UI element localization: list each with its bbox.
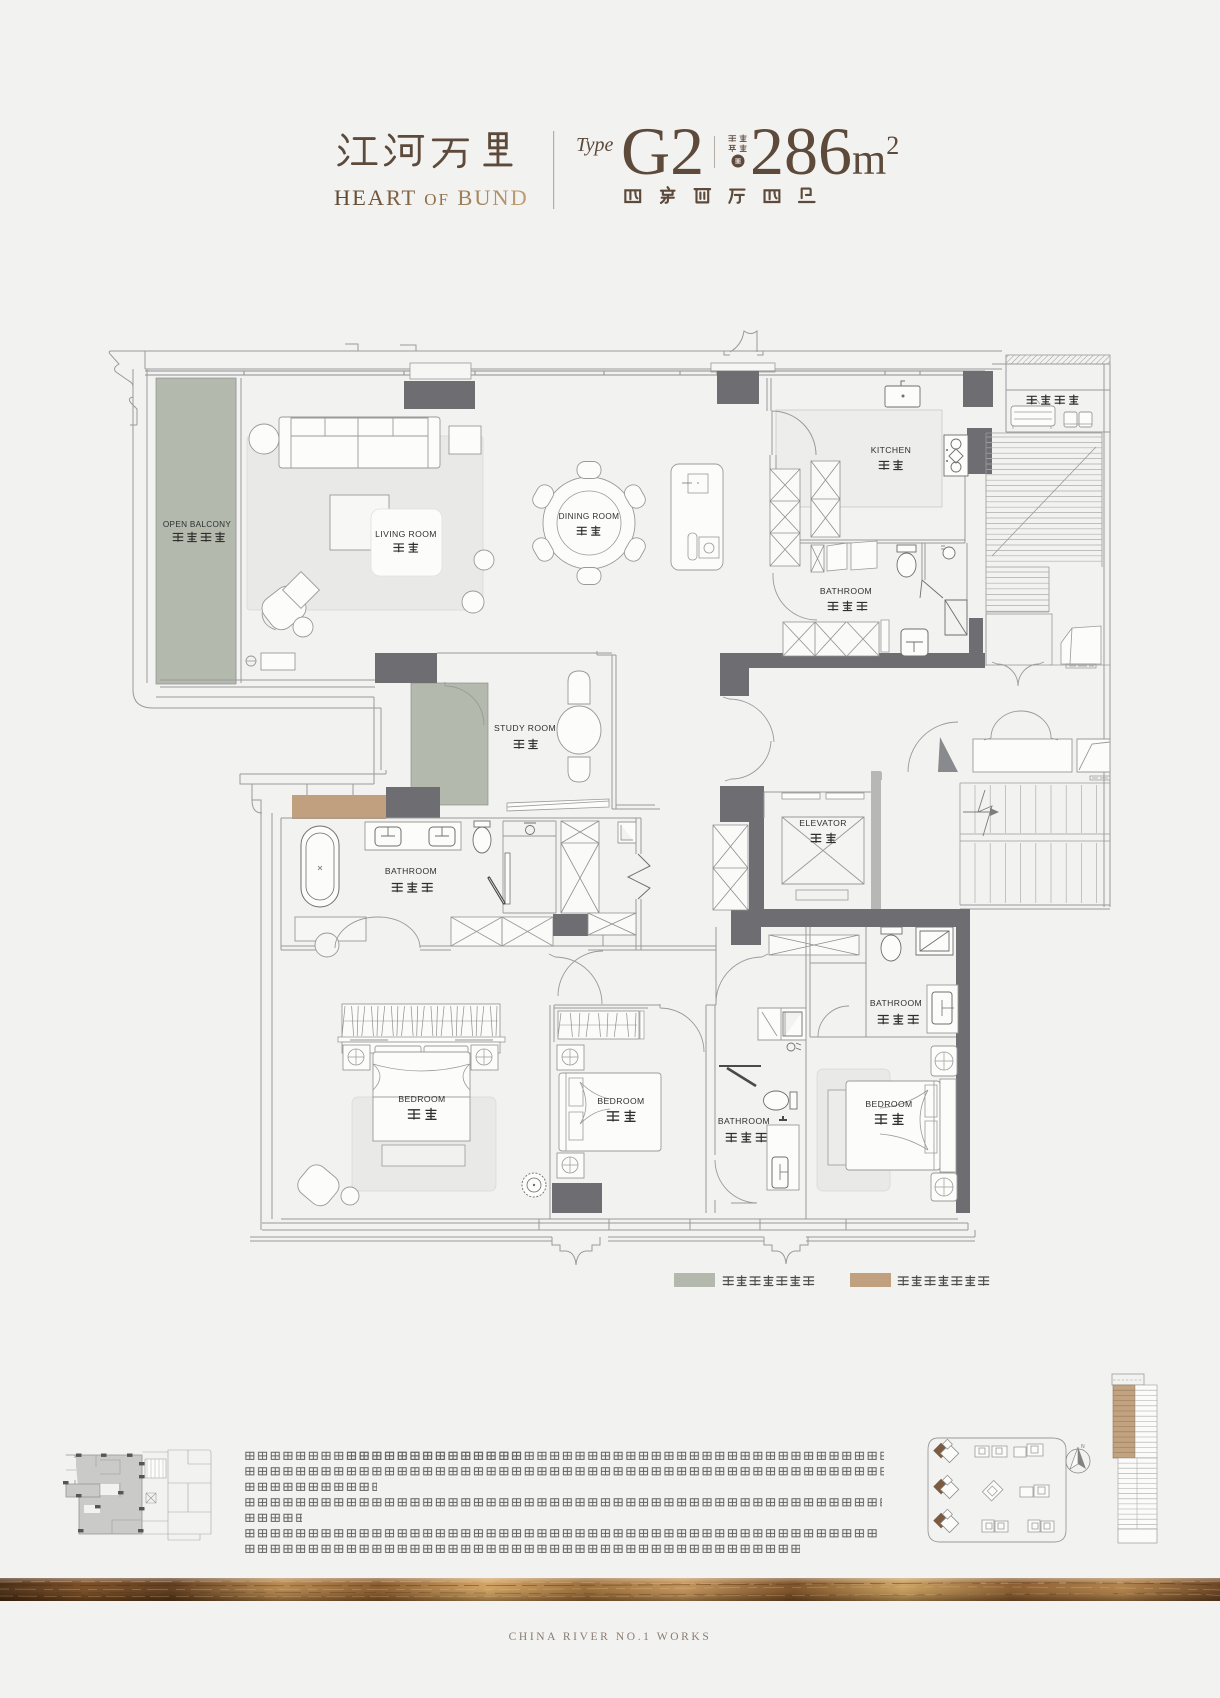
svg-text:DINING ROOM: DINING ROOM (559, 512, 620, 521)
svg-text:BATHROOM: BATHROOM (820, 586, 872, 596)
svg-text:KITCHEN: KITCHEN (871, 445, 912, 455)
svg-text:HEART OF BUND: HEART OF BUND (334, 185, 529, 210)
svg-text:LIVING ROOM: LIVING ROOM (375, 529, 437, 539)
svg-text:OPEN BALCONY: OPEN BALCONY (163, 520, 231, 529)
svg-text:CHINA RIVER NO.1 WORKS: CHINA RIVER NO.1 WORKS (509, 1631, 712, 1643)
svg-text:BEDROOM: BEDROOM (865, 1099, 912, 1109)
svg-text:Type: Type (576, 134, 614, 156)
svg-text:BATHROOM: BATHROOM (870, 998, 922, 1008)
svg-text:286m2: 286m2 (750, 113, 899, 189)
svg-text:BEDROOM: BEDROOM (398, 1094, 445, 1104)
svg-text:N: N (1081, 1444, 1085, 1450)
svg-text:G2: G2 (621, 113, 704, 189)
svg-text:BATHROOM: BATHROOM (385, 866, 437, 876)
svg-text:BATHROOM: BATHROOM (718, 1116, 770, 1126)
svg-text:STUDY ROOM: STUDY ROOM (494, 723, 556, 733)
svg-text:ELEVATOR: ELEVATOR (799, 818, 847, 828)
svg-text:BEDROOM: BEDROOM (597, 1096, 644, 1106)
